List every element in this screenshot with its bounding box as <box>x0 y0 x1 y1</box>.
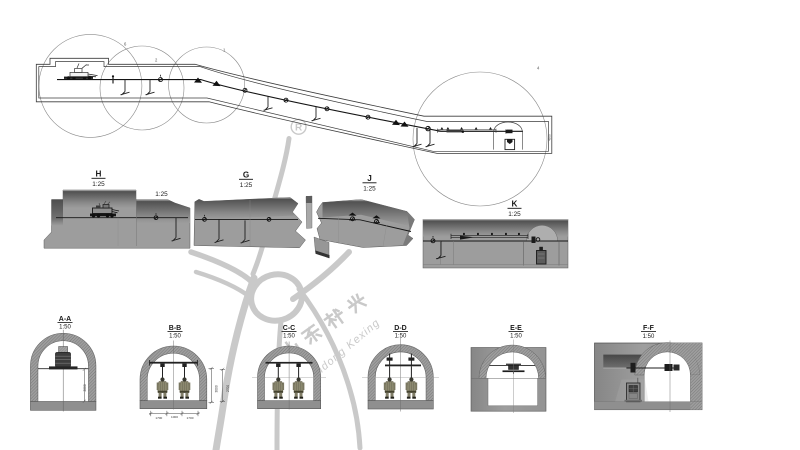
svg-text:4500: 4500 <box>548 134 552 141</box>
svg-text:6: 6 <box>124 42 127 47</box>
svg-text:1000: 1000 <box>171 415 178 419</box>
svg-text:1:50: 1:50 <box>643 334 655 340</box>
svg-text:1700: 1700 <box>187 416 194 420</box>
svg-text:H: H <box>96 170 102 179</box>
svg-text:3000: 3000 <box>215 385 219 392</box>
svg-text:1:50: 1:50 <box>59 325 71 331</box>
svg-text:E-E: E-E <box>510 325 522 332</box>
svg-text:2: 2 <box>155 58 158 63</box>
svg-text:1:25: 1:25 <box>508 211 521 218</box>
svg-text:C-C: C-C <box>283 325 295 332</box>
svg-text:1:50: 1:50 <box>283 334 295 340</box>
svg-text:K: K <box>512 200 518 209</box>
svg-text:J: J <box>367 174 372 183</box>
svg-text:1:25: 1:25 <box>92 181 105 188</box>
svg-text:D-D: D-D <box>394 325 406 332</box>
svg-text:B-B: B-B <box>169 325 181 332</box>
svg-text:2000: 2000 <box>83 384 87 391</box>
svg-text:G: G <box>243 171 249 180</box>
svg-text:1:25: 1:25 <box>363 185 376 192</box>
svg-text:1700: 1700 <box>155 416 162 420</box>
svg-text:A-A: A-A <box>59 316 71 323</box>
svg-text:4: 4 <box>537 66 540 71</box>
svg-text:2700: 2700 <box>226 385 230 392</box>
svg-text:F-F: F-F <box>643 325 655 332</box>
svg-text:R: R <box>295 123 303 134</box>
svg-text:1:25: 1:25 <box>240 182 253 189</box>
svg-text:1:50: 1:50 <box>510 334 522 340</box>
svg-text:1:50: 1:50 <box>169 334 181 340</box>
svg-text:1:25: 1:25 <box>155 191 168 198</box>
